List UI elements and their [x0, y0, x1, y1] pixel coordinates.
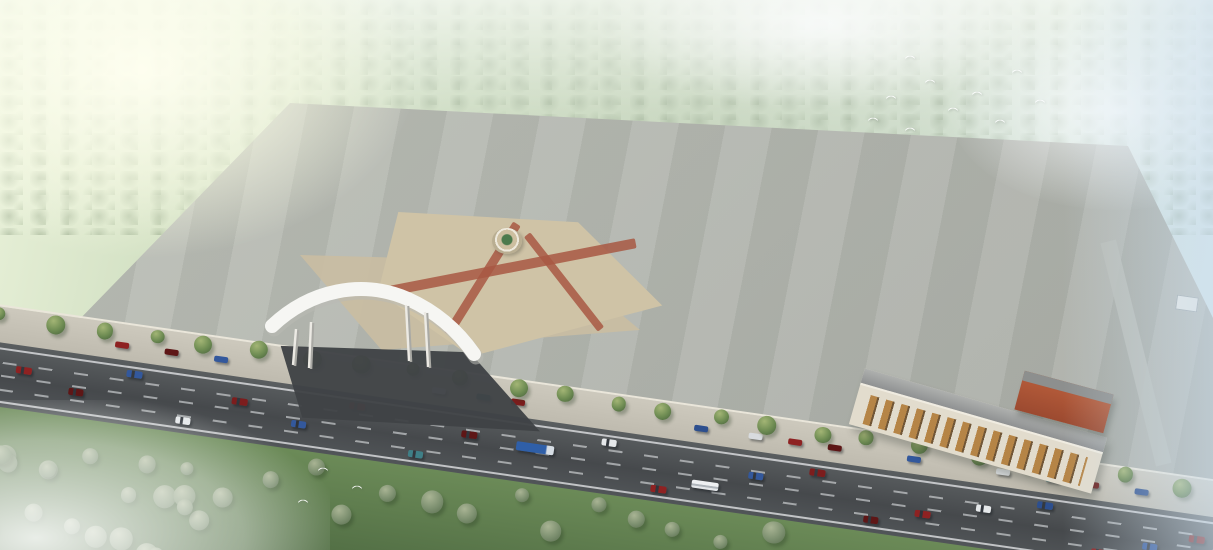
bottom-left-mist: [0, 400, 330, 550]
flying-bird: [905, 128, 915, 134]
flying-bird: [868, 118, 878, 124]
right-edge-haze: [1063, 0, 1213, 550]
aerial-rendering-scene: [0, 0, 1213, 550]
sun-glare: [0, 0, 420, 260]
flying-bird: [352, 486, 362, 492]
